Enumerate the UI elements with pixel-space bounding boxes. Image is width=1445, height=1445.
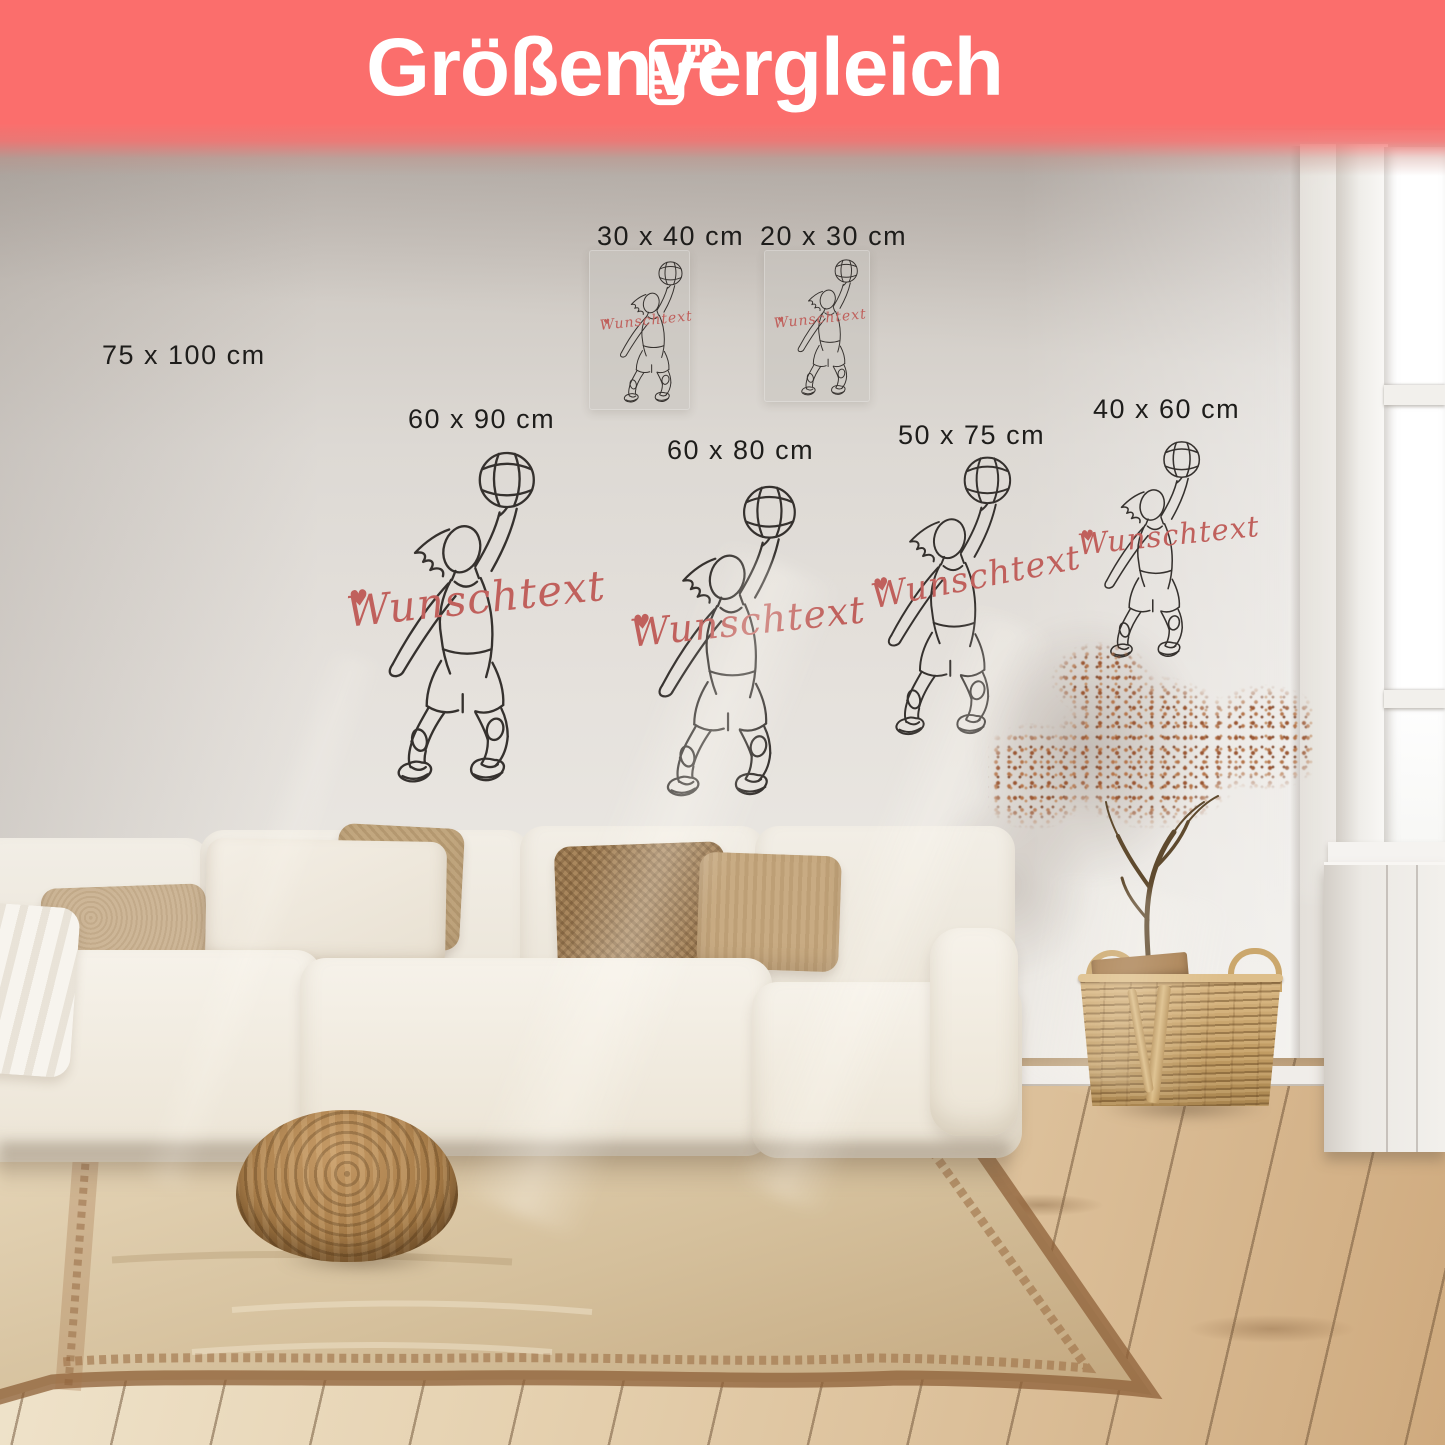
panel-seam	[1416, 865, 1418, 1152]
pillow-tan	[696, 852, 842, 973]
sofa	[0, 818, 1022, 1168]
size-label-60x90: 60 x 90 cm	[408, 404, 555, 435]
sofa-shadow	[0, 1142, 1010, 1190]
size-label-75x100: 75 x 100 cm	[102, 340, 266, 371]
window-mullion	[1384, 385, 1445, 405]
banner-title-row: Größenvergleich	[0, 22, 1407, 114]
window-frame	[1336, 144, 1388, 910]
basket-rim	[1078, 974, 1283, 982]
rattan-basket	[1078, 978, 1283, 1106]
window-glass	[1384, 147, 1445, 907]
size-label-40x60: 40 x 60 cm	[1093, 394, 1240, 425]
window-mullion	[1384, 690, 1445, 708]
size-label-60x80: 60 x 80 cm	[667, 435, 814, 466]
banner-title: Größenvergleich	[366, 27, 1003, 109]
armrest	[930, 928, 1018, 1136]
size-label-50x75: 50 x 75 cm	[898, 420, 1045, 451]
panel-seam	[1386, 865, 1388, 1152]
wicker-pouf	[236, 1110, 458, 1262]
size-comparison-mockup: 75 x 100 cm 30 x 40 cm 20 x 30 cm 60 x 9…	[0, 0, 1445, 1445]
throw-blanket	[0, 902, 81, 1079]
sideboard	[1324, 862, 1445, 1152]
size-label-30x40: 30 x 40 cm	[597, 221, 744, 252]
size-label-20x30: 20 x 30 cm	[760, 221, 907, 252]
banner: Größenvergleich	[0, 0, 1445, 176]
